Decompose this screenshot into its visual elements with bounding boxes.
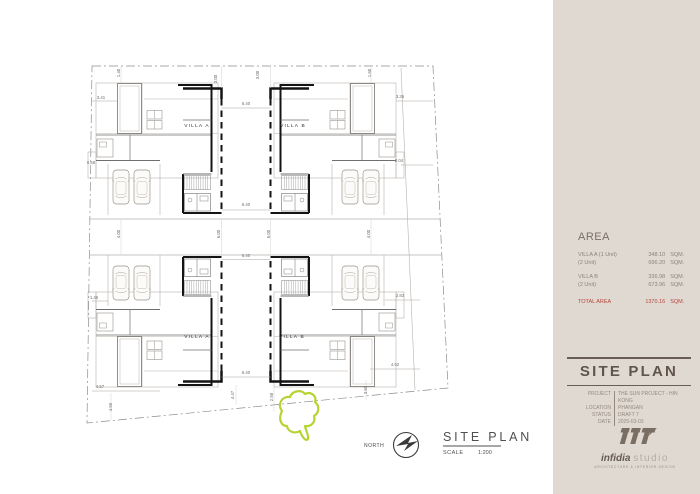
dimension-label: 3.41 — [97, 95, 106, 100]
dimension-label: 4.55 — [108, 402, 113, 411]
dimension-label: 1.46 — [90, 295, 99, 300]
logo-mark-icon — [603, 424, 667, 448]
dimension-label: 3.50 — [363, 385, 368, 394]
area-total-label: TOTAL AREA — [578, 298, 637, 306]
area-row: VILLA A (1 Unit)348.10SQM. — [578, 251, 692, 259]
dimension-label: 1.40 — [116, 68, 121, 77]
project-info-row: STATUSDRAFT 7 — [567, 412, 691, 419]
project-info-row: LOCATIONPHANGAN — [567, 405, 691, 412]
villa-label: VILLA B — [280, 123, 306, 129]
compass-icon — [394, 433, 419, 458]
villa-unit — [88, 83, 222, 215]
dimension-label: 6.40 — [242, 202, 251, 207]
dimension-label: 4.00 — [366, 229, 371, 238]
area-total-row: TOTAL AREA 1370.16 SQM. — [578, 298, 692, 306]
area-row: VILLA B336.98SQM. — [578, 273, 692, 281]
area-row: (2 Unit)673.96SQM. — [578, 281, 692, 289]
area-total-value: 1370.16 — [637, 298, 665, 306]
villa-unit — [88, 255, 222, 387]
villa-label: VILLA A — [184, 334, 209, 340]
dimension-label: 4.47 — [230, 390, 235, 399]
villa-label: VILLA B — [279, 334, 305, 340]
dimension-label: 6.00 — [216, 229, 221, 238]
area-title: AREA — [578, 231, 692, 243]
project-info: PROJECTTHE SUN PROJECT - HIN KONGLOCATIO… — [567, 391, 691, 426]
dimension-label: 4.00 — [116, 229, 121, 238]
villa-unit — [271, 83, 405, 215]
dimension-label: 4.92 — [391, 362, 400, 367]
villa-unit — [271, 255, 405, 387]
dimension-label: 6.00 — [266, 229, 271, 238]
dimension-label: 2.58 — [269, 392, 274, 401]
scale-label: SCALE — [443, 450, 464, 456]
villa-label: VILLA A — [184, 123, 209, 129]
dimension-label: 4.57 — [96, 384, 105, 389]
area-rows: VILLA A (1 Unit)348.10SQM.(2 Unit)696.20… — [578, 251, 692, 289]
highlight-blob — [280, 391, 318, 440]
area-total-unit: SQM. — [665, 298, 692, 306]
dimension-label: 6.40 — [242, 253, 251, 258]
dimension-label: 1.60 — [367, 68, 372, 77]
logo-name: infidia studio — [578, 453, 692, 464]
dimension-label: 3.00 — [255, 70, 260, 79]
area-row: (2 Unit)696.20SQM. — [578, 259, 692, 267]
compass-arrow-icon — [396, 435, 418, 451]
drawing-title: SITE PLAN — [443, 430, 532, 444]
scale-value: 1:200 — [478, 450, 492, 456]
drawing-sheet: VILLA AVILLA BVILLA AVILLA B3.411.403.00… — [0, 0, 700, 494]
studio-logo: infidia studio ARCHITECTURE & INTERIOR D… — [578, 424, 692, 469]
dimension-label: 0.58 — [87, 160, 96, 165]
title-block: SITE PLAN PROJECTTHE SUN PROJECT - HIN K… — [567, 357, 691, 426]
dimension-label: 3.00 — [213, 74, 218, 83]
dimension-label: 2.04 — [395, 158, 404, 163]
sheet-title: SITE PLAN — [567, 357, 691, 386]
dimension-label: 3.36 — [396, 94, 405, 99]
dimension-label: 6.40 — [242, 370, 251, 375]
site-plan-drawing: VILLA AVILLA BVILLA AVILLA B3.411.403.00… — [0, 0, 553, 494]
area-summary: AREA VILLA A (1 Unit)348.10SQM.(2 Unit)6… — [578, 231, 692, 306]
dimension-label: 2.83 — [396, 293, 405, 298]
title-sidebar: AREA VILLA A (1 Unit)348.10SQM.(2 Unit)6… — [553, 0, 700, 494]
project-info-row: PROJECTTHE SUN PROJECT - HIN KONG — [567, 391, 691, 405]
north-label: NORTH — [364, 443, 384, 449]
dimension-label: 6.40 — [242, 101, 251, 106]
logo-tagline: ARCHITECTURE & INTERIOR DESIGN — [578, 465, 692, 469]
